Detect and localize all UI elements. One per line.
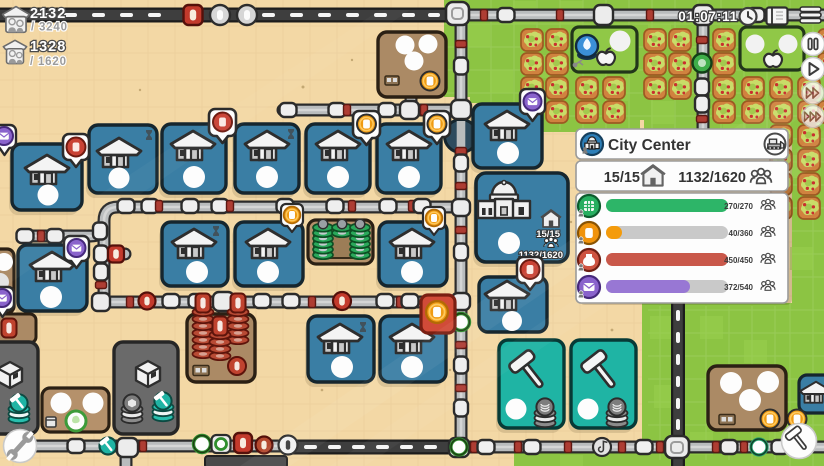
svg-text:2132: 2132 (30, 6, 66, 22)
svg-text:/ 1620: / 1620 (30, 56, 67, 68)
svg-text:01:07:11: 01:07:11 (678, 9, 738, 24)
svg-text:15/15: 15/15 (604, 170, 640, 186)
svg-text:/ 3240: / 3240 (31, 22, 68, 34)
svg-text:City Center: City Center (608, 137, 691, 154)
svg-text:1132/1620: 1132/1620 (678, 170, 746, 186)
svg-text:450/450: 450/450 (724, 256, 753, 265)
svg-text:270/270: 270/270 (724, 202, 753, 211)
svg-text:372/540: 372/540 (724, 283, 753, 292)
svg-text:40/360: 40/360 (729, 229, 754, 238)
svg-text:1328: 1328 (30, 39, 66, 55)
